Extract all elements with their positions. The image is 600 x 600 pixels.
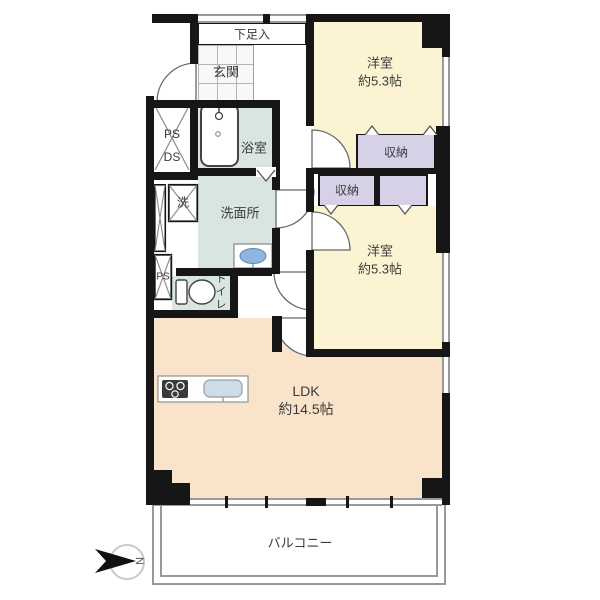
compass-north-label: N [133, 557, 145, 565]
label-closet-1: 収納 [384, 144, 408, 161]
label-closet-2: 収納 [335, 182, 359, 199]
closet-1-bifold-mark [423, 126, 437, 135]
label-bathroom: 浴室 [241, 138, 267, 157]
label-bedroom-1: 洋室 約5.3帖 [358, 54, 402, 89]
north-arrow-icon [95, 549, 136, 573]
label-bedroom-2: 洋室 約5.3帖 [358, 242, 402, 277]
door-marks-layer: N [0, 0, 600, 600]
label-entrance: 玄関 [213, 62, 239, 81]
closet-2-bifold-mark [398, 205, 412, 214]
label-washroom: 洗面所 [220, 203, 259, 222]
label-ps-ds: PS DS [164, 123, 181, 169]
floor-plan: N 下足入 玄関 PS DS 浴室 洗 洗面所 PS トイレ 収納 収納 洋室 … [0, 0, 600, 600]
closet-1-bifold-mark [365, 126, 379, 135]
label-ldk: LDK 約14.5帖 [278, 382, 333, 418]
label-toilet: トイレ [212, 273, 228, 312]
label-balcony: バルコニー [268, 533, 333, 552]
label-washer: 洗 [177, 194, 189, 211]
compass: N [95, 545, 145, 579]
label-ps: PS [156, 272, 169, 283]
label-shoe-closet: 下足入 [234, 26, 270, 43]
closet-2-bifold-mark [324, 205, 338, 214]
